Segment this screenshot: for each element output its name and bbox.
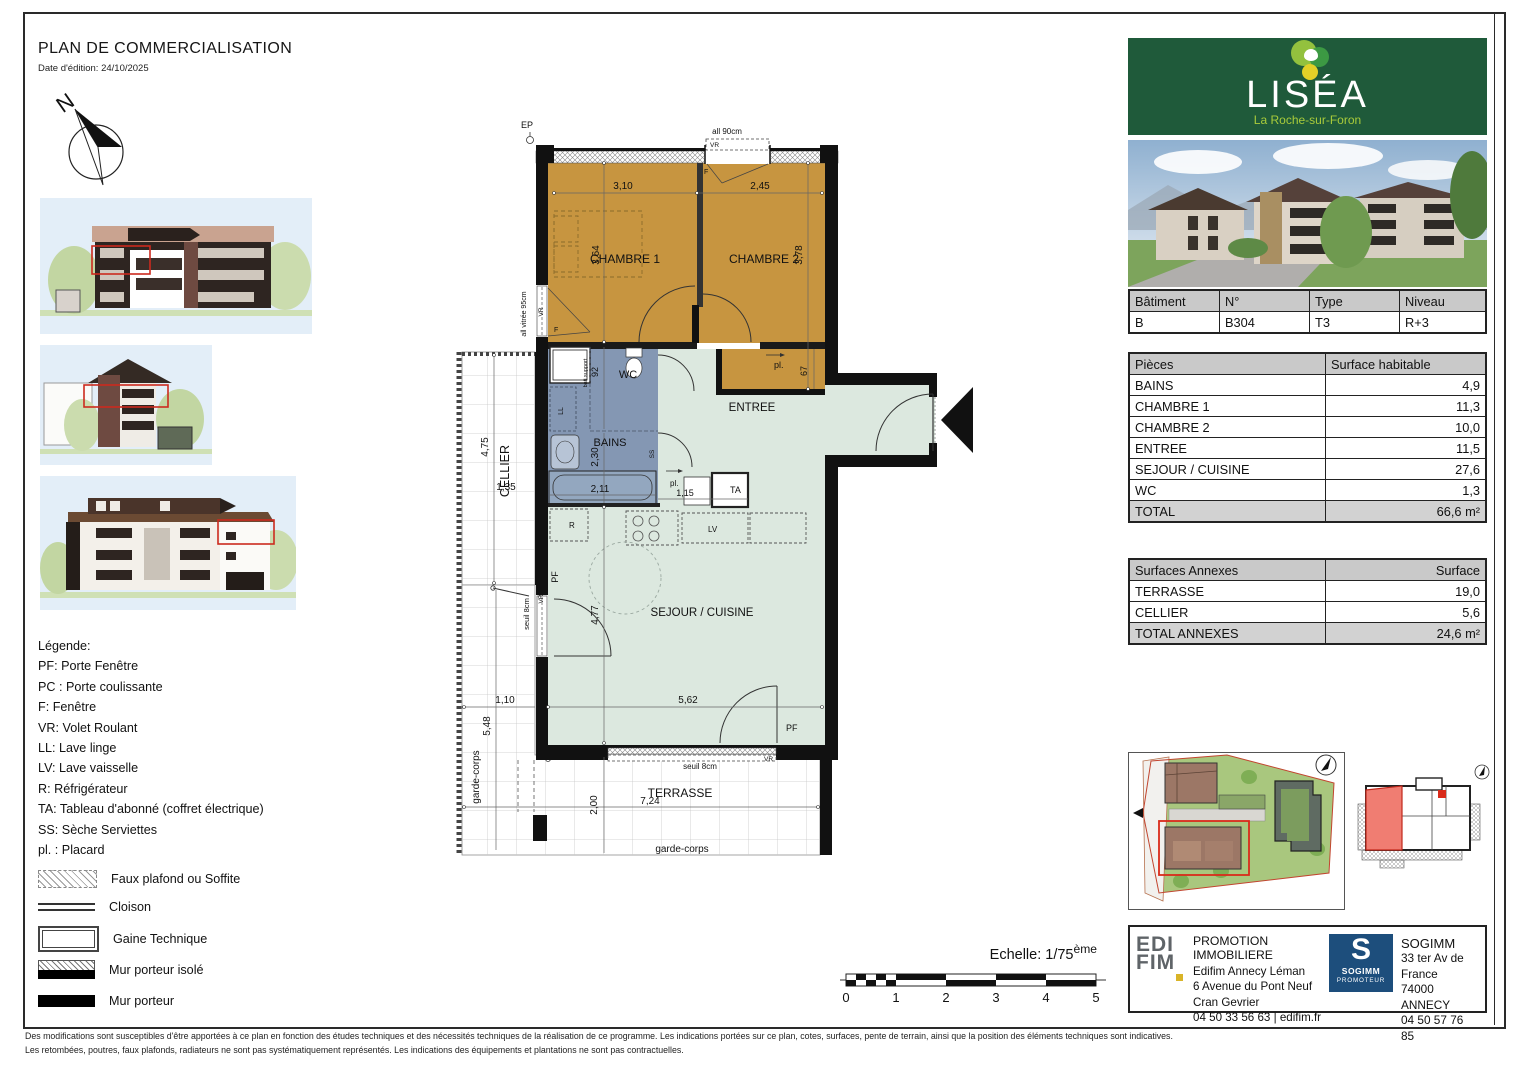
page-title: PLAN DE COMMERCIALISATION xyxy=(38,40,292,58)
bati-support-label: bati support xyxy=(583,358,589,387)
legend-item: TA: Tableau d'abonné (coffret électrique… xyxy=(38,799,458,819)
entrance-arrow-icon xyxy=(941,387,973,453)
sogimm-contact: SOGIMM 33 ter Av de France 74000 ANNECY … xyxy=(1401,934,1479,1044)
room-label-entree: ENTREE xyxy=(729,402,776,414)
pf-label: PF xyxy=(786,723,798,733)
floor-plan: EP all 90cm VR F CHAMBRE 1 CHAMBRE 2 3,1… xyxy=(430,115,1010,915)
dim-label: 5,62 xyxy=(678,695,698,706)
legend-symbol-cloison: Cloison xyxy=(38,900,151,914)
scale-tick: 3 xyxy=(992,990,999,1005)
mur-isole-swatch-icon xyxy=(38,960,95,979)
dim-label: 3,10 xyxy=(613,181,633,192)
table-row: ENTREE 11,5 xyxy=(1130,438,1485,459)
table-row: SEJOUR / CUISINE 27,6 xyxy=(1130,459,1485,480)
sogimm-logo: S SOGIMM PROMOTEUR xyxy=(1329,934,1393,992)
disclaimer-line-1: Des modifications sont susceptibles d'êt… xyxy=(25,1031,1505,1041)
elevation-image-2 xyxy=(40,345,212,465)
legend-item: PF: Porte Fenêtre xyxy=(38,656,458,676)
sheet-frame-inner-line xyxy=(1494,12,1495,1025)
dim-label: 5,48 xyxy=(482,716,493,736)
scale-label: Echelle: 1/75ème xyxy=(905,942,1097,963)
legend-symbol-label: Cloison xyxy=(109,900,151,914)
window-height-label: all 90cm xyxy=(712,127,742,136)
terrasse-column xyxy=(533,815,547,841)
room-label-sejour: SEJOUR / CUISINE xyxy=(651,607,754,619)
dim-label: 3,64 xyxy=(591,245,602,265)
table-row: CELLIER 5,6 xyxy=(1130,602,1485,623)
dim-label: 4,77 xyxy=(590,605,601,625)
dim-label: 3,78 xyxy=(794,245,805,265)
compass-north-label: N xyxy=(52,88,79,118)
legend-item: R: Réfrigérateur xyxy=(38,779,458,799)
f-label: F xyxy=(704,169,708,176)
scale-tick: 0 xyxy=(842,990,849,1005)
table-total-row: TOTAL 66,6 m² xyxy=(1130,501,1485,521)
elevation-image-3 xyxy=(40,476,296,610)
room-label-wc: WC xyxy=(619,369,637,381)
refrigerateur-label: R xyxy=(569,521,575,530)
legend-symbol-isole: Mur porteur isolé xyxy=(38,960,204,979)
legend-item: F: Fenêtre xyxy=(38,697,458,717)
legend-symbol-label: Faux plafond ou Soffite xyxy=(111,872,240,886)
unit-header-type: Type xyxy=(1310,291,1400,312)
scale-text: Echelle: 1/75 xyxy=(990,947,1074,963)
annex-header-label: Surfaces Annexes xyxy=(1130,560,1326,581)
garde-corps-label: garde-corps xyxy=(471,750,482,803)
unit-header-niveau: Niveau xyxy=(1400,291,1485,312)
pf-label: PF xyxy=(550,571,560,583)
elevation-image-1 xyxy=(40,198,312,334)
dim-label: 1,35 xyxy=(496,482,516,493)
surface-header-pieces: Pièces xyxy=(1130,354,1326,375)
seuil-label: seuil 8cm xyxy=(683,762,717,771)
lisea-logo: LISÉA La Roche-sur-Foron xyxy=(1128,38,1487,135)
dim-label: 4,75 xyxy=(480,437,491,457)
ep-label: EP xyxy=(521,120,533,130)
edifim-logo-accent xyxy=(1176,974,1183,981)
surface-table: Pièces Surface habitable BAINS 4,9 CHAMB… xyxy=(1128,352,1487,523)
legend-item: LV: Lave vaisselle xyxy=(38,758,458,778)
legend-item: SS: Sèche Serviettes xyxy=(38,820,458,840)
scale-tick: 4 xyxy=(1042,990,1049,1005)
legend-symbol-label: Mur porteur isolé xyxy=(109,963,204,977)
unit-value-niveau: R+3 xyxy=(1400,312,1485,332)
table-row: CHAMBRE 1 11,3 xyxy=(1130,396,1485,417)
compass-icon: N xyxy=(52,86,132,196)
dim-label: 2,30 xyxy=(590,447,601,467)
table-total-row: TOTAL ANNEXES 24,6 m² xyxy=(1130,623,1485,643)
ll-label: LL xyxy=(558,407,565,415)
ta-label: TA xyxy=(730,485,741,495)
dim-label: 1,15 xyxy=(676,488,694,498)
legend-symbol-label: Mur porteur xyxy=(109,994,174,1008)
legend-item: VR: Volet Roulant xyxy=(38,718,458,738)
edition-date: Date d'édition: 24/10/2025 xyxy=(38,63,149,74)
f-label: F xyxy=(554,327,558,334)
table-row: WC 1,3 xyxy=(1130,480,1485,501)
vr-label: VR xyxy=(538,307,545,316)
ss-label: SS xyxy=(649,449,656,458)
annex-table: Surfaces Annexes Surface TERRASSE 19,0 C… xyxy=(1128,558,1487,645)
seuil-label: seuil 8cm xyxy=(522,598,531,630)
table-row: CHAMBRE 2 10,0 xyxy=(1130,417,1485,438)
unit-header-numero: N° xyxy=(1220,291,1310,312)
garde-corps-label: garde-corps xyxy=(655,844,708,855)
floor-key-plan-image xyxy=(1354,764,1490,876)
building-render-image xyxy=(1128,140,1487,287)
gaine-swatch-icon xyxy=(38,926,99,952)
scale-sup: ème xyxy=(1074,942,1098,956)
vr-label: VR xyxy=(710,142,719,149)
legend-title: Légende: xyxy=(38,636,458,656)
vr-label: VR xyxy=(764,756,773,763)
lv-label: LV xyxy=(708,525,718,534)
unit-value-numero: B304 xyxy=(1220,312,1310,332)
legend-symbol-soffite: Faux plafond ou Soffite xyxy=(38,870,240,888)
site-plan-image xyxy=(1128,752,1345,910)
unit-header-batiment: Bâtiment xyxy=(1130,291,1220,312)
legend-item: pl. : Placard xyxy=(38,840,458,860)
edifim-logo-bottom: FIM xyxy=(1136,954,1186,972)
scale-tick: 2 xyxy=(942,990,949,1005)
annex-header-surface: Surface xyxy=(1326,560,1485,581)
table-row: TERRASSE 19,0 xyxy=(1130,581,1485,602)
promoter-block: EDI FIM PROMOTION IMMOBILIERE Edifim Ann… xyxy=(1128,925,1487,1013)
surface-header-surface: Surface habitable xyxy=(1326,354,1485,375)
dim-label: 67 xyxy=(799,366,809,376)
unit-value-batiment: B xyxy=(1130,312,1220,332)
edifim-title: PROMOTION IMMOBILIERE xyxy=(1193,934,1325,962)
vr-label: VR xyxy=(538,594,545,603)
scale-tick: 1 xyxy=(892,990,899,1005)
room-label-chambre2: CHAMBRE 2 xyxy=(729,252,799,266)
lisea-name: LISÉA xyxy=(1246,78,1369,112)
table-row: BAINS 4,9 xyxy=(1130,375,1485,396)
legend: Légende: PF: Porte Fenêtre PC : Porte co… xyxy=(38,636,458,860)
scale-bar: 0 1 2 3 4 5 xyxy=(838,968,1108,1013)
edifim-logo: EDI FIM xyxy=(1136,936,1186,972)
dim-label: 1,10 xyxy=(495,695,515,706)
soffite-swatch-icon xyxy=(38,870,97,888)
dim-label: 2,00 xyxy=(589,795,600,815)
disclaimer-line-2: Les retombées, poutres, faux plafonds, r… xyxy=(25,1045,1505,1055)
dim-label: 2,11 xyxy=(591,484,610,495)
scale-tick: 5 xyxy=(1092,990,1099,1005)
lisea-city: La Roche-sur-Foron xyxy=(1254,113,1361,127)
unit-info-table: Bâtiment N° Type Niveau B B304 T3 R+3 xyxy=(1128,289,1487,334)
edifim-contact: PROMOTION IMMOBILIERE Edifim Annecy Léma… xyxy=(1193,934,1325,1025)
dim-label: 92 xyxy=(590,367,600,377)
dim-label: 7,24 xyxy=(640,796,660,807)
placard-label: pl. xyxy=(774,360,784,370)
legend-symbol-porteur: Mur porteur xyxy=(38,994,174,1008)
mur-porteur-swatch-icon xyxy=(38,995,95,1007)
unit-value-type: T3 xyxy=(1310,312,1400,332)
legend-symbol-gaine: Gaine Technique xyxy=(38,926,207,952)
dim-label: 2,45 xyxy=(750,181,770,192)
room-label-bains: BAINS xyxy=(593,437,626,449)
window-label: all vitrée 95cm xyxy=(521,291,528,336)
legend-symbol-label: Gaine Technique xyxy=(113,932,207,946)
placard-label: pl. xyxy=(670,479,678,488)
legend-item: PC : Porte coulissante xyxy=(38,677,458,697)
cloison-swatch-icon xyxy=(38,903,95,911)
legend-item: LL: Lave linge xyxy=(38,738,458,758)
